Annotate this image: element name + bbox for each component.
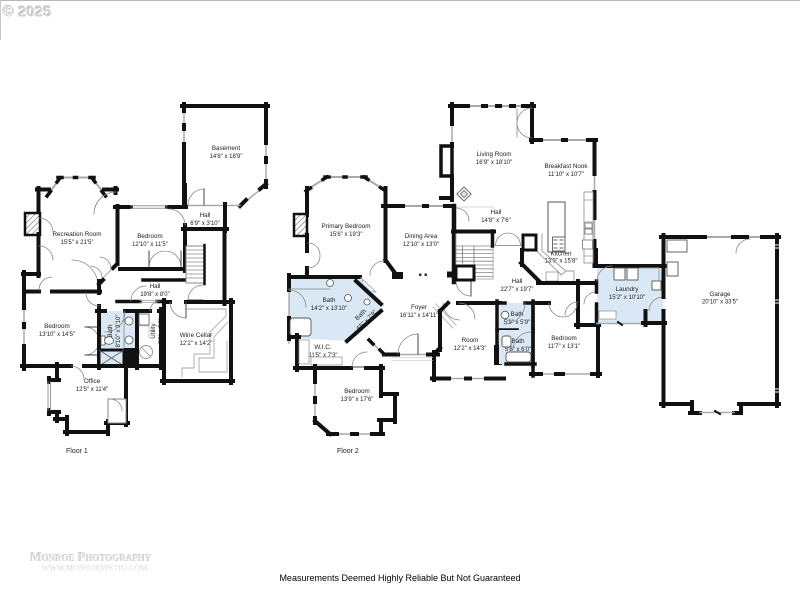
- svg-text:Bedroom: Bedroom: [344, 388, 370, 395]
- svg-text:12'5" x 11'4": 12'5" x 11'4": [76, 387, 108, 393]
- svg-text:8'10" x 9'10": 8'10" x 9'10": [116, 315, 122, 348]
- svg-text:Bedroom: Bedroom: [551, 335, 577, 342]
- svg-text:Bedroom: Bedroom: [137, 233, 163, 240]
- svg-text:12'10" x 11'5": 12'10" x 11'5": [132, 242, 168, 248]
- svg-text:13'10" x 14'5": 13'10" x 14'5": [39, 332, 75, 338]
- svg-text:Office: Office: [84, 378, 101, 385]
- svg-text:Breakfast Nook: Breakfast Nook: [544, 163, 588, 170]
- svg-text:Bath: Bath: [512, 338, 525, 345]
- svg-text:Bath: Bath: [323, 297, 336, 304]
- svg-text:Primary Bedroom: Primary Bedroom: [322, 223, 371, 230]
- svg-text:14'2" x 13'10": 14'2" x 13'10": [311, 306, 347, 312]
- svg-text:Monroe Photography: Monroe Photography: [30, 550, 152, 564]
- svg-text:15'6" x 19'3": 15'6" x 19'3": [330, 232, 363, 238]
- svg-text:Measurements Deemed Highly Rel: Measurements Deemed Highly Reliable But …: [279, 573, 520, 583]
- svg-text:Living Room: Living Room: [477, 151, 512, 158]
- svg-text:Wine Cellar: Wine Cellar: [180, 332, 213, 339]
- svg-text:22'7" x 19'7": 22'7" x 19'7": [501, 287, 534, 293]
- svg-text:Hall: Hall: [491, 209, 502, 216]
- svg-text:Foyer: Foyer: [411, 304, 427, 311]
- svg-text:12'2" x 14'2": 12'2" x 14'2": [180, 341, 213, 347]
- svg-text:6'9" x 3'10": 6'9" x 3'10": [190, 221, 220, 227]
- svg-text:16'11" x 14'11": 16'11" x 14'11": [400, 313, 439, 319]
- svg-text:14'8" x 18'9": 14'8" x 18'9": [210, 154, 243, 160]
- svg-text:Hall: Hall: [150, 283, 161, 290]
- svg-text:15'5" x 21'5": 15'5" x 21'5": [61, 240, 94, 246]
- svg-text:Utility: Utility: [150, 322, 157, 338]
- svg-text:11'10" x 10'7": 11'10" x 10'7": [548, 172, 584, 178]
- svg-text:Garage: Garage: [709, 291, 731, 298]
- svg-text:Hall: Hall: [512, 278, 523, 285]
- svg-text:Floor 1: Floor 1: [66, 448, 88, 455]
- svg-text:Hall: Hall: [200, 212, 211, 219]
- svg-text:Bedroom: Bedroom: [44, 323, 70, 330]
- svg-text:5'9" x 5'9": 5'9" x 5'9": [504, 320, 530, 326]
- svg-text:Laundry: Laundry: [616, 286, 640, 293]
- svg-text:Dining Area: Dining Area: [405, 233, 438, 240]
- svg-text:16'9" x 18'10": 16'9" x 18'10": [476, 160, 512, 166]
- svg-text:© 2025: © 2025: [3, 4, 52, 21]
- svg-text:Recreation Room: Recreation Room: [53, 231, 102, 238]
- svg-text:11'7" x 13'1": 11'7" x 13'1": [548, 344, 580, 350]
- svg-text:Room: Room: [462, 337, 479, 344]
- svg-text:13'9" x 17'6": 13'9" x 17'6": [341, 397, 374, 403]
- svg-text:WWW.MONROEPHOTO.COM: WWW.MONROEPHOTO.COM: [42, 564, 147, 573]
- svg-text:14'8" x 7'6": 14'8" x 7'6": [481, 218, 511, 224]
- svg-text:19'8" x 8'0": 19'8" x 8'0": [140, 292, 170, 298]
- svg-text:W.I.C.: W.I.C.: [314, 344, 331, 351]
- svg-text:12'2" x 14'3": 12'2" x 14'3": [454, 346, 487, 352]
- svg-text:20'10" x 33'5": 20'10" x 33'5": [702, 300, 738, 306]
- svg-text:Floor 2: Floor 2: [337, 448, 359, 455]
- svg-text:15'2" x 10'10": 15'2" x 10'10": [609, 295, 645, 301]
- svg-text:Basement: Basement: [212, 145, 241, 152]
- svg-text:12'10" x 13'0": 12'10" x 13'0": [403, 242, 439, 248]
